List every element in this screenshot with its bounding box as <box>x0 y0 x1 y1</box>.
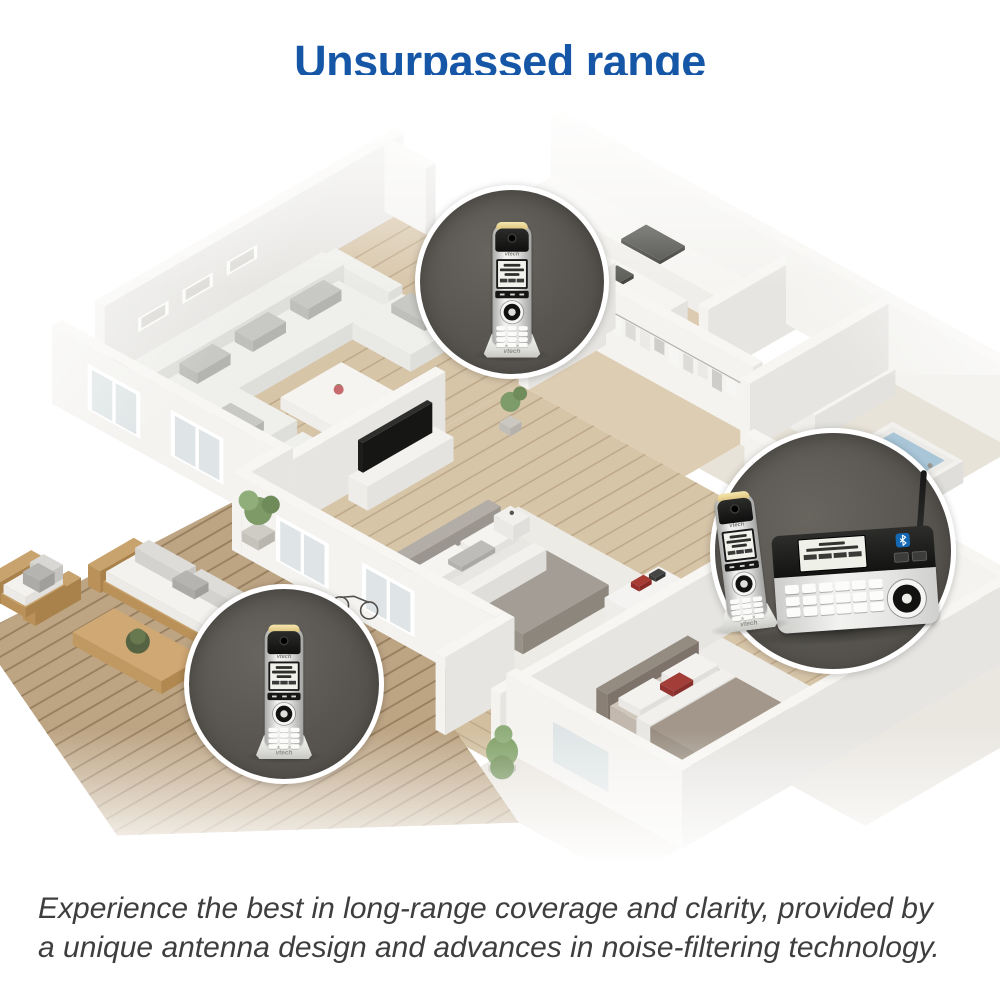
lcd-row <box>804 551 862 560</box>
speakerphone-button <box>887 578 928 619</box>
marketing-image: Unsurpassed range vtechvtech vtechvtechv… <box>0 0 1000 1000</box>
brand-logo: vtech <box>492 252 531 258</box>
brand-logo: vtech <box>255 750 312 756</box>
keypad <box>496 326 528 347</box>
cordless-handset: vtechvtech <box>258 621 310 759</box>
caption-line-1: Experience the best in long-range covera… <box>38 889 970 928</box>
lcd-screen <box>721 528 757 562</box>
wall-sw <box>232 472 242 555</box>
brand-logo: vtech <box>265 654 304 660</box>
base-keypad-panel: vtech <box>774 567 940 634</box>
caption: Experience the best in long-range covera… <box>38 889 970 967</box>
hall-front-wall-sw <box>436 652 446 735</box>
base-keypad <box>785 579 885 618</box>
bath-faucet <box>928 463 933 468</box>
nav-button <box>501 301 523 323</box>
softkey-band <box>495 291 528 298</box>
callout-base-station: vtechvtechvtech <box>710 428 956 674</box>
callout-living-room-handset: vtechvtech <box>415 185 609 379</box>
keypad <box>268 728 299 749</box>
setup-button <box>894 552 910 563</box>
softkey-band <box>267 693 300 700</box>
base-lcd-screen <box>797 535 867 573</box>
softkey-row <box>728 548 753 555</box>
speaker-lens <box>281 638 287 644</box>
softkey-row <box>272 681 296 685</box>
lcd-screen <box>268 661 299 690</box>
earpiece <box>495 228 528 251</box>
speaker-lens <box>509 235 516 242</box>
nav-button <box>273 703 295 725</box>
brand-logo: vtech <box>483 348 541 355</box>
lcd-screen <box>496 259 528 289</box>
base-station: vtechvtechvtech <box>722 477 944 643</box>
handset-body: vtech <box>713 492 768 619</box>
bluetooth-icon <box>895 533 910 548</box>
nav-button <box>731 571 756 596</box>
table-flowers <box>334 385 344 395</box>
handset-body: vtech <box>265 627 304 747</box>
bedroom2-front-wall-se <box>682 765 692 849</box>
callout-patio-handset: vtechvtech <box>184 584 384 784</box>
handset-body: vtech <box>492 224 531 345</box>
cordless-handset: vtechvtech <box>486 218 538 358</box>
speaker-lens <box>731 505 738 512</box>
tv-screen-sw <box>358 440 363 473</box>
keypad <box>730 596 765 621</box>
caption-line-2: a unique antenna design and advances in … <box>38 928 970 967</box>
softkey-row <box>500 279 524 283</box>
answer-button <box>912 551 928 562</box>
base-body: vtech <box>771 525 939 634</box>
earpiece <box>267 631 300 654</box>
softkey-band <box>724 560 759 572</box>
